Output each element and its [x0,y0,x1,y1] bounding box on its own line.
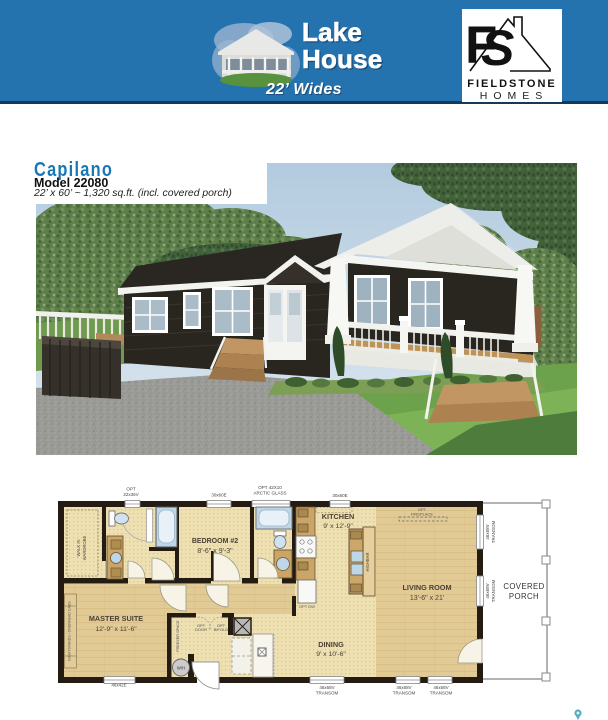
svg-text:BEDROOM #2: BEDROOM #2 [192,538,238,545]
svg-text:9' x 10'-6": 9' x 10'-6" [316,651,346,658]
svg-text:TRANSOM: TRANSOM [491,579,496,602]
svg-text:TRANSOM: TRANSOM [393,691,416,696]
svg-text:ARCTIC GLASS: ARCTIC GLASS [253,491,286,496]
svg-text:BIFOLD: BIFOLD [214,627,229,632]
svg-text:TRANSOM: TRANSOM [430,691,453,696]
svg-text:FREEZER SPACE: FREEZER SPACE [176,620,180,652]
svg-text:NIGHTSTANDS / OVERHEAD CABS: NIGHTSTANDS / OVERHEAD CABS [68,601,72,661]
svg-text:30x60E: 30x60E [332,493,347,498]
svg-text:DOOR: DOOR [195,627,207,632]
svg-text:46x42E: 46x42E [111,683,126,688]
svg-text:46x68V: 46x68V [396,685,411,690]
svg-text:WALK IN: WALK IN [76,539,81,556]
svg-text:46x68V: 46x68V [485,524,490,539]
svg-text:30x60E: 30x60E [211,493,226,498]
svg-text:TRANSOM: TRANSOM [316,691,339,696]
svg-text:OPT DW: OPT DW [299,604,315,609]
svg-text:HOMES: HOMES [480,90,549,102]
svg-text:46x68V: 46x68V [319,685,334,690]
svg-text:HIGHBAR: HIGHBAR [365,552,370,571]
svg-text:PORCH: PORCH [509,592,539,601]
svg-text:S: S [481,20,514,76]
svg-text:DINING: DINING [318,640,344,649]
svg-text:FIREPLACE: FIREPLACE [411,512,434,517]
svg-text:FIELDSTONE: FIELDSTONE [467,78,556,90]
svg-text:OPT: OPT [126,487,136,492]
svg-text:46x68V: 46x68V [485,583,490,598]
svg-text:KITCHEN: KITCHEN [322,512,354,521]
svg-text:WARDROBE: WARDROBE [82,536,87,561]
svg-text:12'-9" x 11'-6": 12'-9" x 11'-6" [95,626,137,633]
svg-text:OPT 42X10: OPT 42X10 [258,485,282,490]
svg-text:MASTER SUITE: MASTER SUITE [89,614,143,623]
svg-text:46x68V: 46x68V [433,685,448,690]
svg-text:W/H: W/H [177,666,185,671]
svg-text:13'-6" x 21': 13'-6" x 21' [410,595,444,602]
svg-text:LIVING ROOM: LIVING ROOM [402,583,451,592]
svg-text:22x36V: 22x36V [123,492,138,497]
svg-text:TRANSOM: TRANSOM [491,520,496,543]
svg-text:COVERED: COVERED [503,582,544,591]
